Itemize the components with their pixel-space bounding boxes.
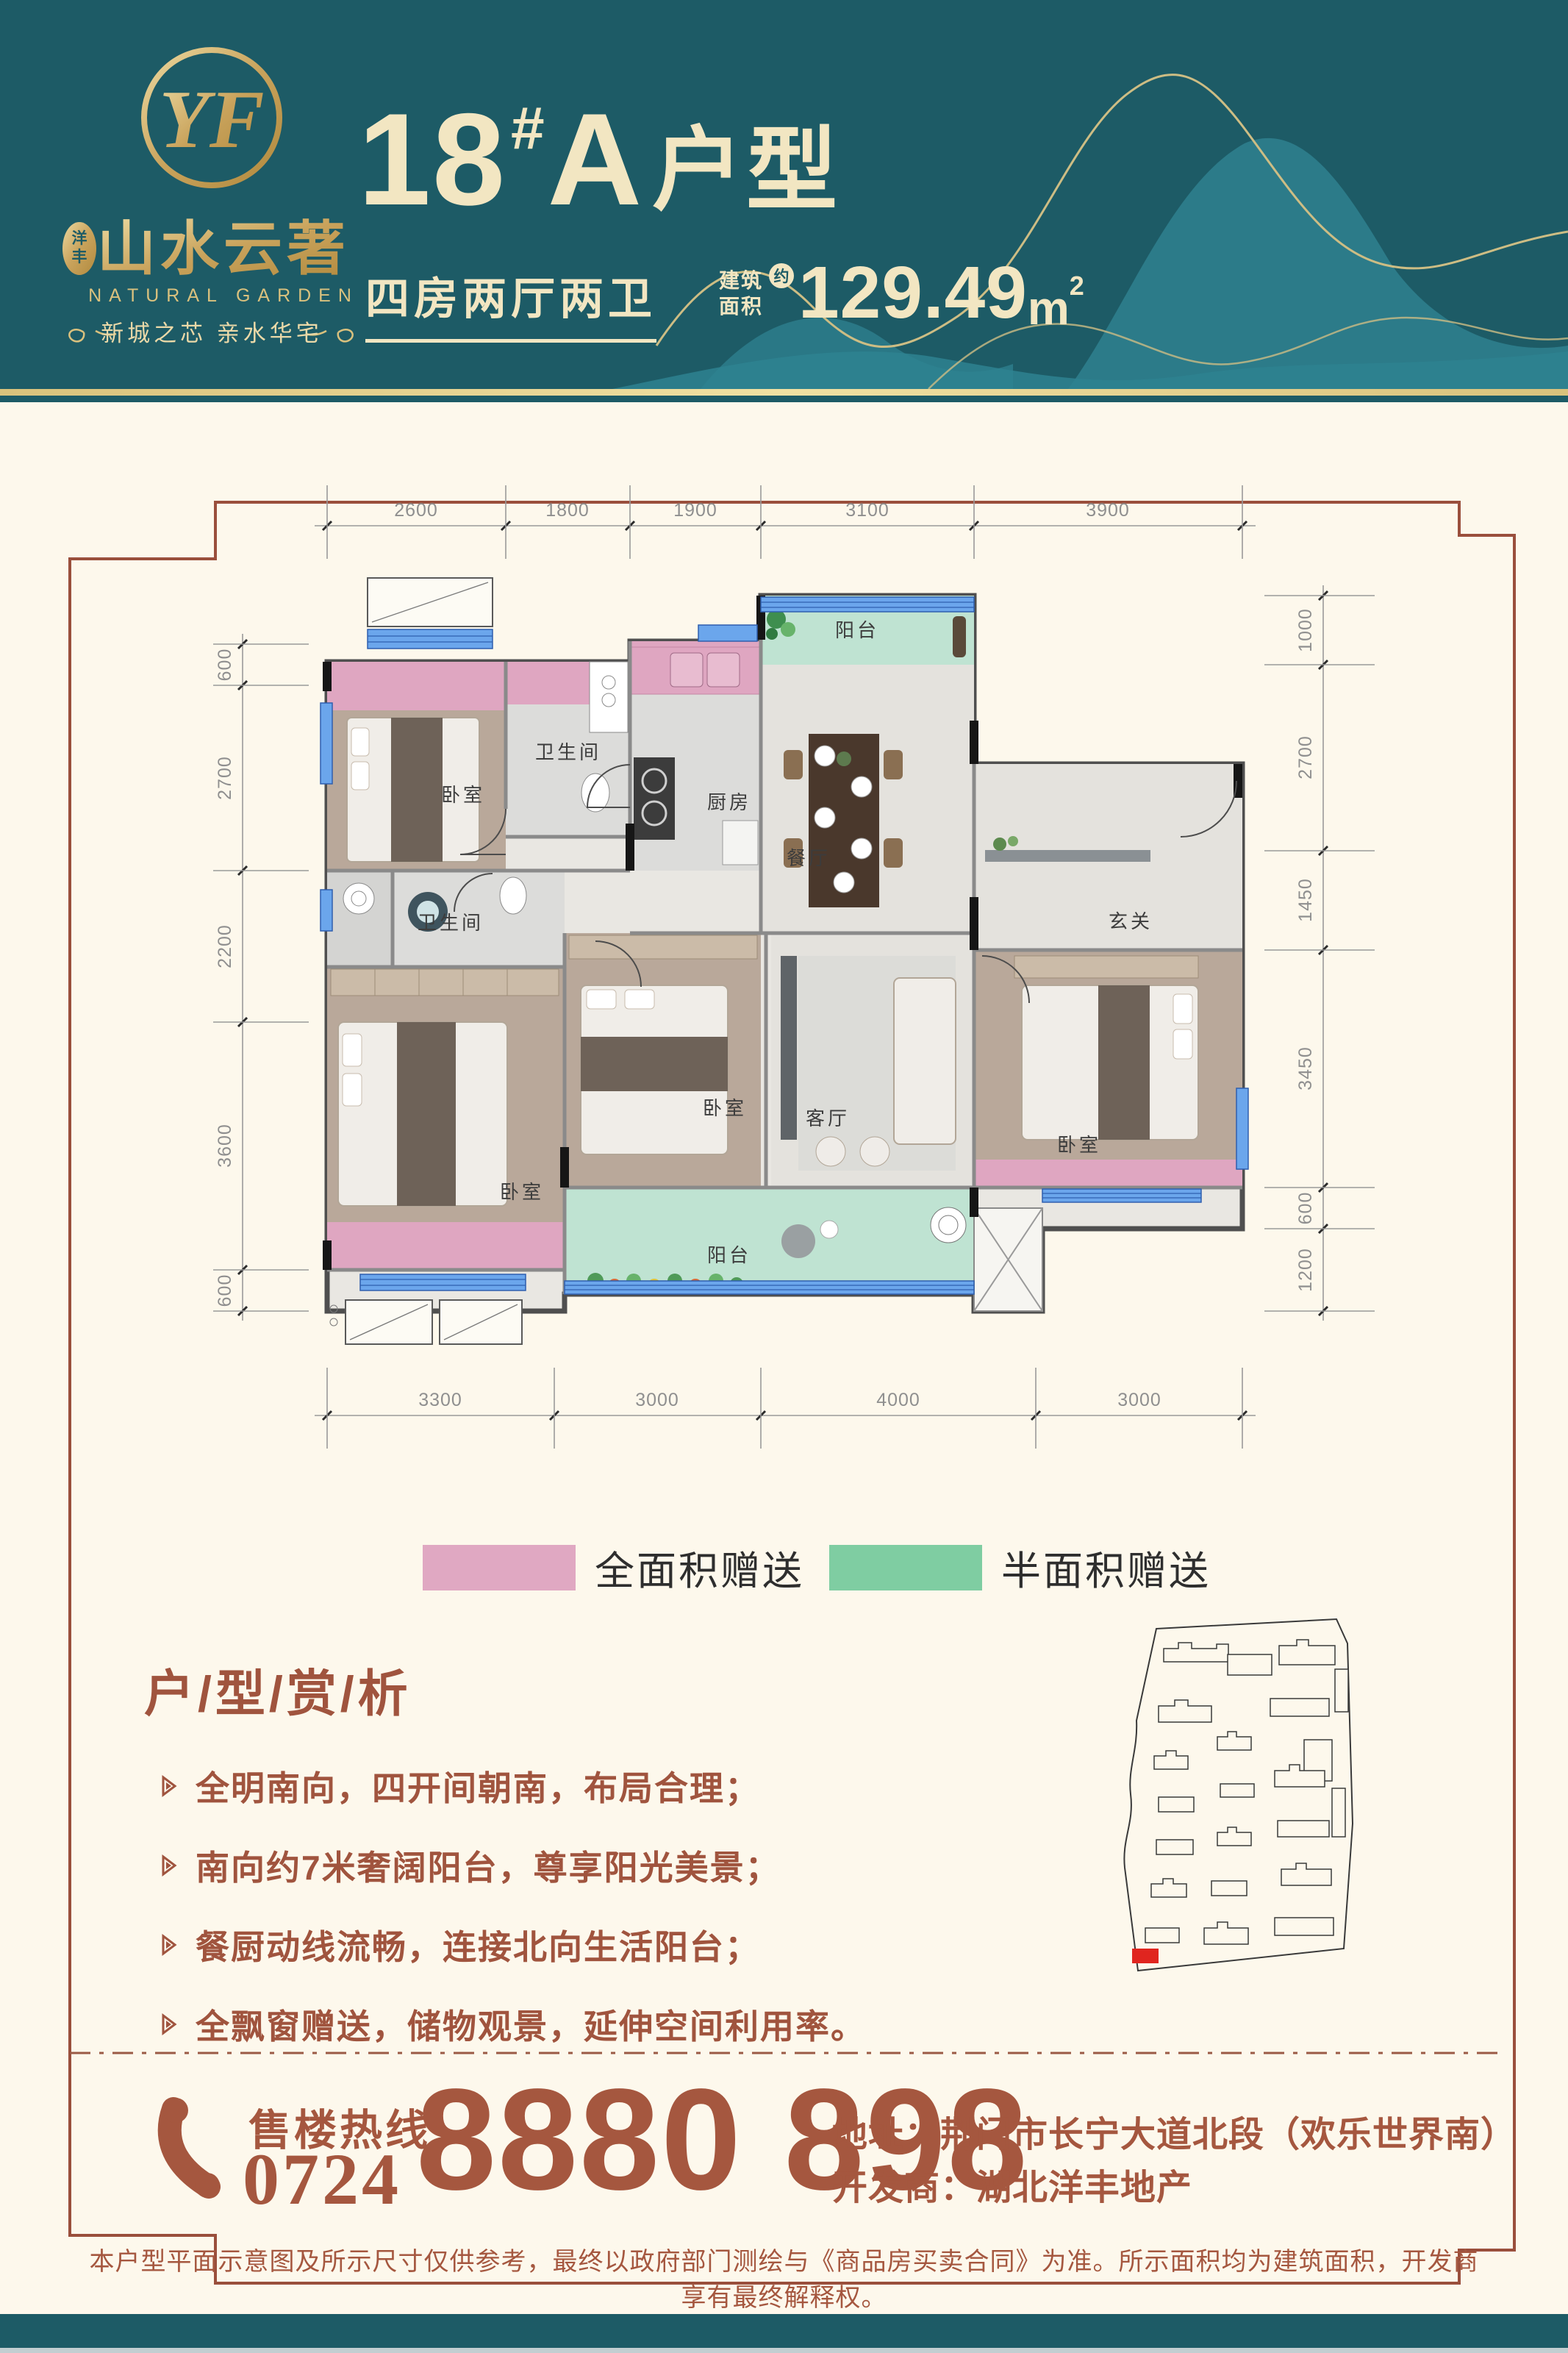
bullet-text: 南向约7米奢阔阳台，尊享阳光美景；: [196, 1841, 781, 1890]
legend-label-full: 全面积赠送: [595, 1538, 804, 1596]
analysis-bullet-1: 全明南向，四开间朝南，布局合理；: [160, 1762, 866, 1810]
room-label-entry: 玄关: [1109, 910, 1153, 932]
legend-half-gift: 半面积赠送: [829, 1538, 1211, 1596]
room-label-kitchen: 厨房: [707, 791, 751, 813]
bullet-arrow-icon: [160, 2013, 178, 2035]
footer-bottom-strip: [0, 2348, 1568, 2353]
dim-top-2: 1900: [673, 500, 717, 521]
room-label-balcony-south: 阳台: [707, 1244, 751, 1266]
address-line: 地址：荆门市长宁大道北段（欢乐世界南）: [832, 2109, 1517, 2162]
legend-swatch-pink: [423, 1545, 576, 1590]
analysis-title: 户/型/赏/析: [144, 1653, 412, 1726]
footer-band: [0, 2314, 1568, 2348]
floor-plan: 卧室 卫生间 厨房 阳台 餐厅 玄关 卫生间 卧室 卧室 客厅 卧室 阳台 26…: [184, 441, 1411, 1478]
developer-line: 开发商：湖北洋丰地产: [832, 2162, 1517, 2215]
dim-left-4: 600: [215, 1274, 235, 1307]
room-label-dining: 餐厅: [787, 847, 831, 869]
dim-bottom-3: 3000: [1117, 1390, 1161, 1410]
dim-right-4: 600: [1295, 1192, 1316, 1225]
dim-left-3: 3600: [215, 1124, 235, 1168]
room-label-bath-1: 卫生间: [535, 741, 601, 763]
legend-full-gift: 全面积赠送: [423, 1538, 804, 1596]
bullet-arrow-icon: [160, 1934, 178, 1956]
bullet-text: 全明南向，四开间朝南，布局合理；: [196, 1762, 760, 1810]
dim-right-2: 1450: [1295, 878, 1316, 922]
dim-bottom-0: 3300: [418, 1390, 462, 1410]
dim-right-1: 2700: [1295, 735, 1316, 779]
legend-swatch-green: [829, 1545, 982, 1590]
analysis-bullet-2: 南向约7米奢阔阳台，尊享阳光美景；: [160, 1841, 866, 1890]
bullet-text: 餐厨动线流畅，连接北向生活阳台；: [196, 1921, 760, 1969]
dim-bottom-2: 4000: [876, 1390, 920, 1410]
room-label-living: 客厅: [806, 1107, 850, 1129]
analysis-bullet-3: 餐厨动线流畅，连接北向生活阳台；: [160, 1921, 866, 1969]
analysis-bullets: 全明南向，四开间朝南，布局合理； 南向约7米奢阔阳台，尊享阳光美景； 餐厨动线流…: [160, 1762, 866, 2079]
legend-label-half: 半面积赠送: [1001, 1538, 1211, 1596]
dim-right-3: 3450: [1295, 1046, 1316, 1090]
room-label-bedroom-3: 卧室: [703, 1097, 747, 1119]
dim-top-3: 3100: [845, 500, 889, 521]
disclaimer-text: 本户型平面示意图及所示尺寸仅供参考，最终以政府部门测绘与《商品房买卖合同》为准。…: [81, 2241, 1487, 2313]
dim-top-0: 2600: [394, 500, 438, 521]
analysis-bullet-4: 全飘窗赠送，储物观景，延伸空间利用率。: [160, 2000, 866, 2049]
dim-top-4: 3900: [1086, 500, 1130, 521]
dim-left-0: 600: [215, 649, 235, 682]
site-buildings: [1145, 1640, 1348, 1944]
dim-left-2: 2200: [215, 924, 235, 968]
dim-bottom-1: 3000: [635, 1390, 679, 1410]
bullet-arrow-icon: [160, 1854, 178, 1877]
phone-icon: [151, 2093, 232, 2203]
site-plan-map: [1094, 1603, 1395, 1985]
hotline-area-code: 0724: [243, 2137, 401, 2221]
room-label-bedroom-2: 卧室: [500, 1181, 544, 1203]
contact-address-block: 地址：荆门市长宁大道北段（欢乐世界南） 开发商：湖北洋丰地产: [832, 2109, 1517, 2215]
bullet-text: 全飘窗赠送，储物观景，延伸空间利用率。: [196, 2000, 866, 2049]
highlighted-building: [1132, 1949, 1159, 1963]
room-label-balcony-north: 阳台: [835, 619, 879, 641]
dim-right-5: 1200: [1295, 1248, 1316, 1292]
dim-right-0: 1000: [1295, 608, 1316, 652]
room-label-bath-2: 卫生间: [418, 912, 484, 934]
poster-page: YF 洋 丰 山水云著 NATURAL GARDEN 新城之芯 亲水华宅 18 …: [0, 0, 1568, 2353]
dim-top-1: 1800: [545, 500, 590, 521]
dim-left-1: 2700: [215, 756, 235, 800]
bullet-arrow-icon: [160, 1775, 178, 1797]
room-label-bedroom-4: 卧室: [1057, 1134, 1101, 1156]
room-label-bedroom-1: 卧室: [441, 784, 485, 806]
